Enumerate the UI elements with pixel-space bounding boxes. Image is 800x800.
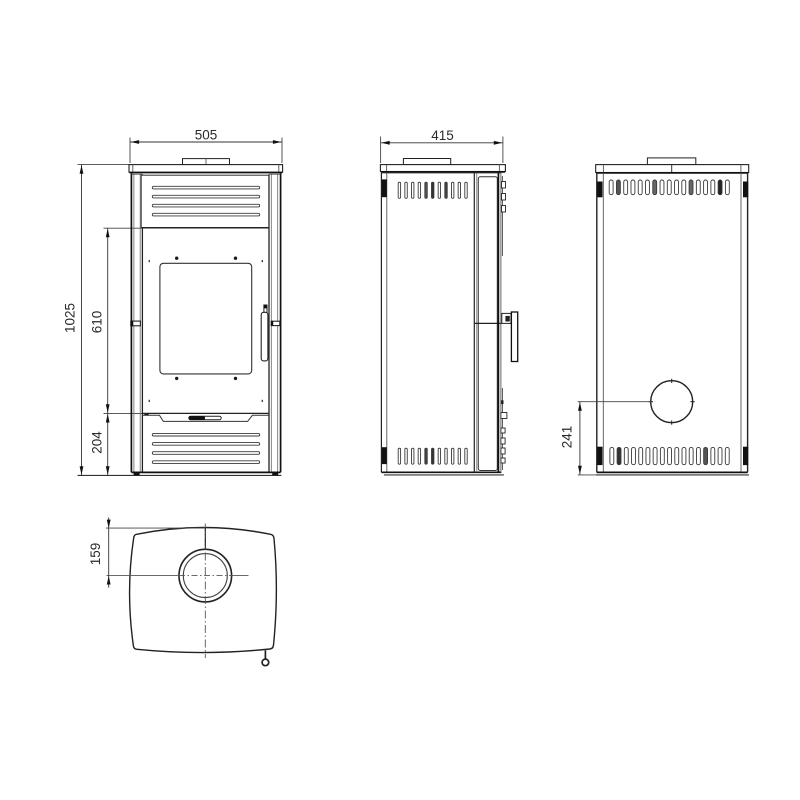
svg-text:505: 505 xyxy=(195,128,218,143)
svg-text:241: 241 xyxy=(560,426,575,449)
svg-text:159: 159 xyxy=(88,543,103,566)
svg-text:415: 415 xyxy=(431,128,454,143)
svg-text:1025: 1025 xyxy=(63,303,78,333)
svg-text:204: 204 xyxy=(90,431,105,454)
svg-text:610: 610 xyxy=(90,311,105,334)
